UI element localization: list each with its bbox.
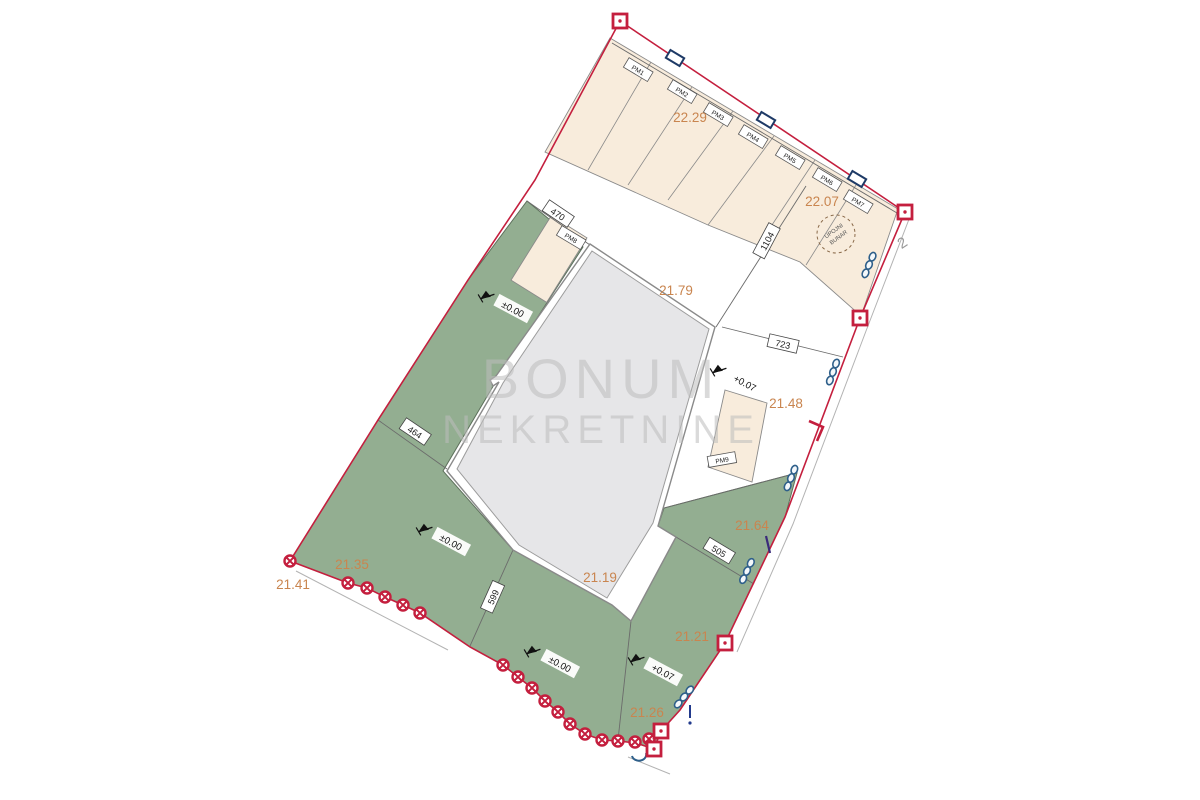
light-icon [757,112,775,128]
watermark-line2: NEKRETNINE [442,408,760,452]
boundary-point-icon [565,719,576,730]
site-plan-page: BONUM NEKRETNINE UPOJNI BUNAR PM1 PM2 PM… [0,0,1200,800]
boundary-point-icon [415,608,426,619]
site-plan-drawing: BONUM NEKRETNINE UPOJNI BUNAR PM1 PM2 PM… [0,0,1200,800]
boundary-point-icon [380,592,391,603]
area-label-2121: 21.21 [675,629,709,644]
area-label-2164: 21.64 [735,518,769,533]
boundary-point-icon [513,672,524,683]
area-label-2126: 21.26 [630,705,664,720]
boundary-point-icon [527,683,538,694]
boundary-point-icon [580,729,591,740]
watermark-line1: BONUM [482,347,720,410]
light-icon [666,50,684,66]
boundary-point-icon [362,583,373,594]
boundary-point-icon [498,660,509,671]
area-label-2207: 22.07 [805,194,839,209]
boundary-point-icon [597,735,608,746]
area-label-2141: 21.41 [276,577,310,592]
survey-marker-icon [898,205,912,219]
survey-marker-icon [613,14,627,28]
survey-marker-icon [853,311,867,325]
boundary-point-icon [630,737,641,748]
survey-marker-icon [647,742,661,756]
area-label-2119: 21.19 [583,570,617,585]
area-label-2135: 21.35 [335,557,369,572]
hedge-icon [826,358,841,385]
boundary-point-icon [343,578,354,589]
survey-marker-icon [654,724,668,738]
boundary-point-icon [540,696,551,707]
area-label-2148: 21.48 [769,396,803,411]
area-label-2179: 21.79 [659,283,693,298]
boundary-point-icon [553,707,564,718]
boundary-point-icon [398,600,409,611]
boundary-point-icon [285,556,296,567]
survey-marker-icon [718,636,732,650]
area-label-2229: 22.29 [673,110,707,125]
boundary-point-icon [613,736,624,747]
